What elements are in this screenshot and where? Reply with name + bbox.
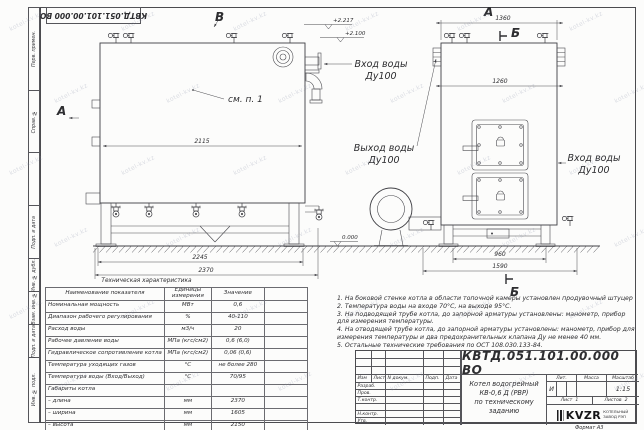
tech-table-body: Номинальная мощностьМВт0,6Диапазон рабоч… — [46, 300, 308, 430]
table-cell: Диапазон рабочего регулирования — [46, 312, 165, 324]
table-row: Габариты котла — [46, 384, 308, 396]
col-list: Лист — [372, 375, 386, 383]
sig-prov: Пров. — [356, 390, 386, 397]
upper-door — [463, 120, 528, 170]
format-note: Формат А3 — [575, 425, 603, 430]
mass-value — [577, 382, 607, 397]
see-note-label: см. п. 1 — [228, 95, 263, 105]
front-support-frame — [439, 225, 555, 247]
table-cell — [164, 384, 211, 396]
table-cell: 40-110 — [211, 312, 264, 324]
inlet-water-right-label: Вход воды — [567, 153, 621, 164]
drain-valve-icon — [238, 203, 246, 217]
table-cell — [264, 396, 307, 408]
bottom-dimensions: 2245 2370 960 1590 — [95, 228, 577, 279]
table-cell: 2150 — [211, 420, 264, 430]
table-row: – ширинамм1605 — [46, 408, 308, 420]
table-cell: мм — [164, 420, 211, 430]
tech-table: Наименование показателя Единицы измерени… — [45, 287, 308, 430]
tech-col-extra — [264, 288, 307, 301]
lower-door — [463, 173, 528, 219]
sig-nkontr: Н.контр. — [356, 411, 386, 418]
table-cell: 2370 — [211, 396, 264, 408]
fan-blower — [370, 188, 441, 246]
table-cell — [264, 324, 307, 336]
door-latch-icon — [498, 191, 504, 194]
table-cell: Температура воды (Вход/Выход) — [46, 372, 165, 384]
inlet-water-right-dn: Ду100 — [577, 165, 609, 176]
drain-valve-icon — [315, 206, 323, 220]
table-cell: Гидравлическое сопротивление котла — [46, 348, 165, 360]
sig-tkontr: Т.контр. — [356, 397, 386, 404]
table-cell: – высота — [46, 420, 165, 430]
table-cell: МПа (кгс/см2) — [164, 348, 211, 360]
marker-a-left: А — [56, 104, 66, 118]
table-row: Расход водым3/ч20 — [46, 324, 308, 336]
sig-utv: Утв. — [356, 418, 386, 425]
scale-header: Масштаб — [607, 375, 639, 382]
table-cell: не более 280 — [211, 360, 264, 372]
company-name: КОТЕЛЬНЫЙ ЗАВОД РЭП — [603, 410, 628, 419]
view-markers: А В А Б Б — [56, 5, 520, 299]
table-row: Температура воды (Вход/Выход)°С70/95 — [46, 372, 308, 384]
table-cell — [264, 372, 307, 384]
table-cell: 70/95 — [211, 372, 264, 384]
company-logo-cell: KVZR КОТЕЛЬНЫЙ ЗАВОД РЭП — [546, 405, 638, 425]
table-cell: 0,6 — [211, 300, 264, 312]
table-cell — [264, 312, 307, 324]
table-cell: Рабочее давление воды — [46, 336, 165, 348]
table-cell: Габариты котла — [46, 384, 165, 396]
tech-table-header-row: Наименование показателя Единицы измерени… — [46, 288, 308, 301]
table-cell: мм — [164, 396, 211, 408]
door-handle-icon — [463, 196, 478, 201]
drain-valve-icon — [112, 203, 120, 217]
drain-valve-icon — [192, 203, 200, 217]
table-cell: 0,06 (0,6) — [211, 348, 264, 360]
inlet-water-label: Вход воды — [354, 59, 408, 70]
vent-valve-icon — [123, 33, 134, 43]
document-name: Котел водогрейный КВ-0,6 Д (РВР) по техн… — [461, 375, 546, 425]
door-latch-icon — [498, 137, 504, 140]
table-cell: % — [164, 312, 211, 324]
marker-sec-top: Б — [511, 26, 520, 40]
table-row: Рабочее давление водыМПа (кгс/см2)0,6 (6… — [46, 336, 308, 348]
tech-col-units: Единицы измерения — [164, 288, 211, 301]
side-tap-icon — [562, 216, 573, 226]
table-cell: 0,6 (6,0) — [211, 336, 264, 348]
table-cell: 1605 — [211, 408, 264, 420]
dim-2370: 2370 — [198, 267, 213, 274]
table-cell — [264, 360, 307, 372]
table-cell — [264, 420, 307, 430]
table-cell: – длина — [46, 396, 165, 408]
tech-col-name: Наименование показателя — [46, 288, 165, 301]
dim-960: 960 — [494, 251, 506, 258]
table-row: Номинальная мощностьМВт0,6 — [46, 300, 308, 312]
note-line: 1. На боковой стенке котла в области топ… — [337, 295, 636, 302]
elev-mid-label: +2.100 — [345, 31, 366, 37]
lit-value: И — [547, 382, 557, 397]
sheet-cell: Лист 1 — [547, 397, 593, 405]
vent-valve-icon — [444, 33, 455, 43]
lit-header: Лит. — [547, 375, 577, 382]
table-cell: Температура уходящих газов — [46, 360, 165, 372]
table-cell: м3/ч — [164, 324, 211, 336]
vent-valve-icon — [282, 33, 293, 43]
sight-flange-icon — [273, 47, 293, 67]
title-block: Изм Лист N докум. Подп. Дата Разраб. Про… — [355, 350, 637, 424]
pipe-labels: Вход воды Ду100 Выход воды Ду100 Вход во… — [324, 59, 621, 176]
scale-value: 1:15 — [607, 382, 639, 397]
doc-name-line3: по техническому заданию — [462, 398, 546, 416]
note-line: 4. На отводящей трубе котла, до запорной… — [337, 326, 636, 341]
dim-1590: 1590 — [492, 263, 507, 270]
side-view: 2115 см. п. 1 — [86, 33, 323, 246]
sig-razrab: Разраб. — [356, 383, 386, 390]
table-cell: Номинальная мощность — [46, 300, 165, 312]
sheets-cell: Листов 2 — [593, 397, 639, 405]
doc-name-line1: Котел водогрейный — [462, 380, 546, 389]
sheet-value: 1 — [575, 398, 578, 403]
document-designation: КВТД.051.101.00.000 ВО — [461, 351, 638, 375]
table-row: Температура уходящих газов°Сне более 280 — [46, 360, 308, 372]
table-row: – длинамм2370 — [46, 396, 308, 408]
elev-top-label: +2.217 — [333, 18, 354, 24]
dim-2115: 2115 — [194, 138, 209, 145]
note-line: 2. Температура воды на входе 70°С, на вы… — [337, 303, 636, 310]
dim-1360: 1360 — [495, 15, 510, 22]
marker-b-top: В — [215, 10, 224, 24]
mass-header: Масса — [577, 375, 607, 382]
doc-name-line2: КВ-0,6 Д (РВР) — [462, 389, 546, 398]
company-logo-text: KVZR — [566, 409, 601, 422]
front-view: 1360 1260 — [370, 15, 573, 247]
dim-1260: 1260 — [492, 78, 507, 85]
table-cell: МВт — [164, 300, 211, 312]
sheets-value: 2 — [625, 398, 628, 403]
change-header-row: Изм Лист N докум. Подп. Дата — [356, 375, 461, 383]
table-row: Диапазон рабочего регулирования%40-110 — [46, 312, 308, 324]
table-row: Гидравлическое сопротивление котлаМПа (к… — [46, 348, 308, 360]
kvzr-logo-icon — [557, 410, 564, 421]
inlet-pipe — [305, 53, 322, 103]
elev-zero-label: 0.000 — [342, 235, 358, 241]
table-cell: – ширина — [46, 408, 165, 420]
table-cell: Расход воды — [46, 324, 165, 336]
col-izm: Изм — [356, 375, 372, 383]
inlet-water-dn: Ду100 — [364, 71, 396, 82]
table-cell — [264, 348, 307, 360]
tech-table-title: Техническая характеристика — [45, 278, 248, 284]
outlet-water-dn: Ду100 — [367, 155, 399, 166]
table-cell: мм — [164, 408, 211, 420]
outlet-water-label: Выход воды — [354, 143, 415, 154]
table-cell: 20 — [211, 324, 264, 336]
drain-valve-icon — [145, 203, 153, 217]
col-ndocum: N докум. — [386, 375, 424, 383]
col-podp: Подп. — [424, 375, 444, 383]
sheets-label: Листов — [604, 398, 621, 403]
vent-valve-icon — [108, 33, 119, 43]
vent-valve-icon — [537, 33, 548, 43]
company-name-line2: ЗАВОД РЭП — [603, 415, 628, 420]
table-cell: °С — [164, 360, 211, 372]
table-row: – высотамм2150 — [46, 420, 308, 430]
table-cell — [264, 384, 307, 396]
side-support-frame — [96, 203, 304, 247]
drawing-sheet: Перв. примен. Справ. № Подп. и дата Инв.… — [0, 0, 644, 430]
marker-a-view-title: А — [483, 5, 493, 19]
sig-empty — [356, 404, 386, 411]
note-line: 3. На подводящей трубе котла, до запорно… — [337, 311, 636, 326]
dim-2245: 2245 — [192, 254, 207, 261]
sheet-label: Лист — [561, 398, 573, 403]
side-tap-icon — [423, 220, 434, 230]
door-handle-icon — [463, 146, 478, 151]
table-cell — [211, 384, 264, 396]
table-cell — [264, 300, 307, 312]
col-data: Дата — [444, 375, 461, 383]
vent-valve-icon — [459, 33, 470, 43]
tech-col-value: Значение — [211, 288, 264, 301]
vent-valve-icon — [226, 33, 237, 43]
table-cell: °С — [164, 372, 211, 384]
technical-notes: 1. На боковой стенке котла в области топ… — [337, 295, 636, 350]
table-cell: МПа (кгс/см2) — [164, 336, 211, 348]
ground-hatch — [93, 247, 599, 253]
table-cell — [264, 336, 307, 348]
table-cell — [264, 408, 307, 420]
